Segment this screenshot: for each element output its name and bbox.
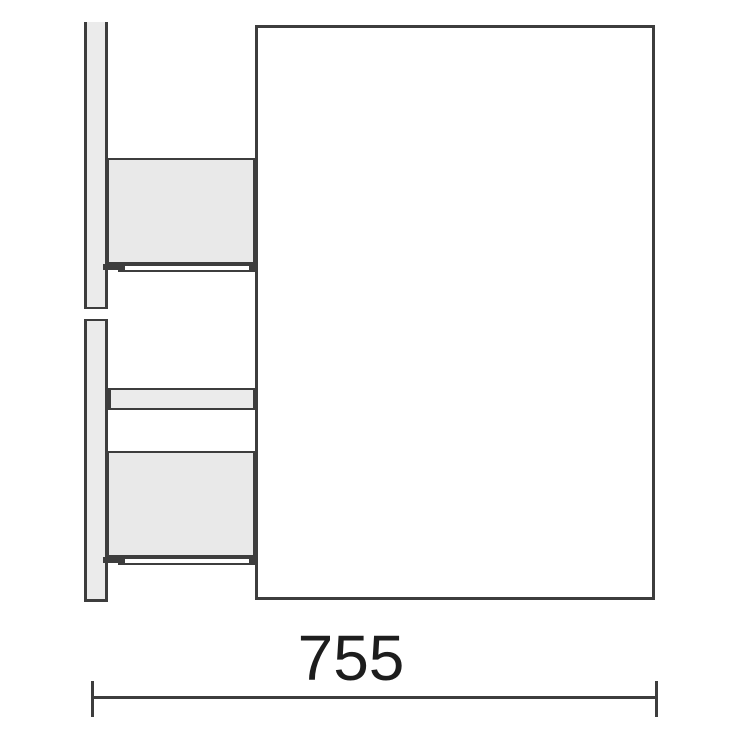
drawer-box-bottom xyxy=(107,451,255,557)
cross-rail xyxy=(106,388,255,410)
dimension-line xyxy=(92,696,658,699)
drawer-box-top xyxy=(107,158,255,264)
drawer-slide-bottom-bracket xyxy=(103,557,125,563)
drawer-slide-top-endcap xyxy=(249,264,255,272)
dimension-tick-right xyxy=(655,681,658,717)
drawer-slide-top-bracket xyxy=(103,264,125,270)
drawer-slide-top-bar xyxy=(118,264,255,272)
cabinet-body-outline xyxy=(255,25,655,600)
dimension-tick-left xyxy=(91,681,94,717)
technical-drawing-canvas: 755 xyxy=(0,0,740,740)
drawer-slide-bottom-bar xyxy=(118,557,255,565)
dimension-label: 755 xyxy=(251,626,451,690)
drawer-slide-bottom-endcap xyxy=(249,557,255,565)
